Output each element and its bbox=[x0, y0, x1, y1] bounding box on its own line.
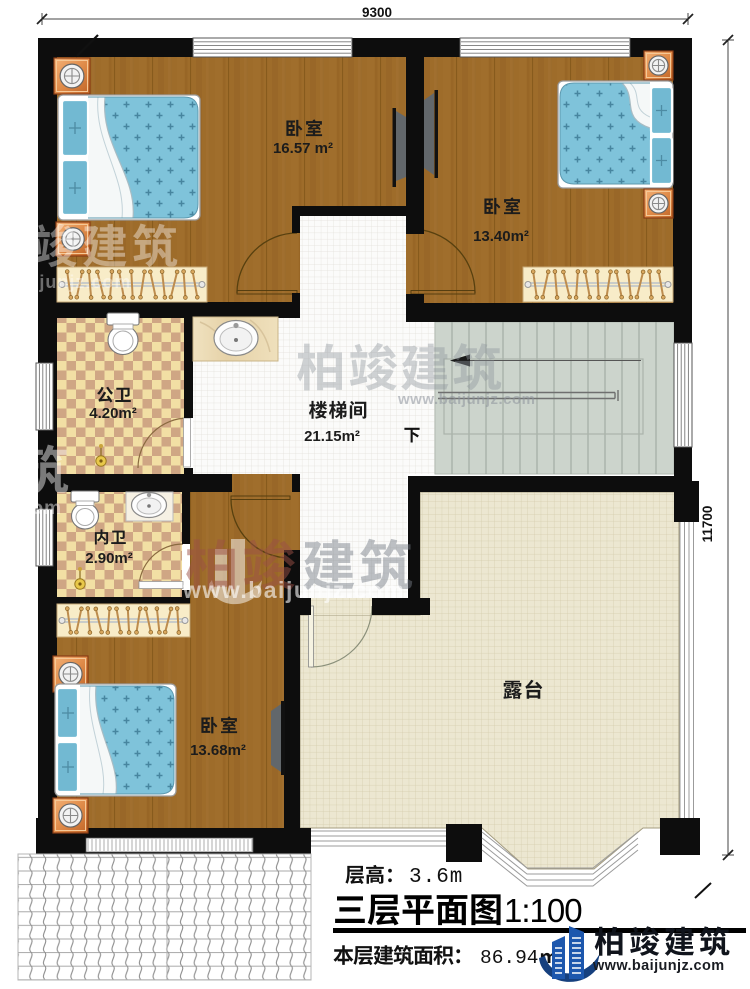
svg-text:www.baijunjz.com: www.baijunjz.com bbox=[0, 272, 131, 292]
svg-text:www.baijunjz.com: www.baijunjz.com bbox=[592, 958, 725, 974]
svg-text:86.94: 86.94 bbox=[480, 947, 539, 969]
svg-text:11700: 11700 bbox=[700, 506, 715, 543]
svg-text:4.20m²: 4.20m² bbox=[89, 405, 137, 422]
svg-text:9300: 9300 bbox=[362, 5, 392, 20]
svg-text:16.57 m²: 16.57 m² bbox=[273, 140, 333, 157]
svg-text:2.90m²: 2.90m² bbox=[85, 550, 133, 567]
svg-text:www.baijunjz.com: www.baijunjz.com bbox=[397, 391, 535, 408]
svg-text:13.68m²: 13.68m² bbox=[190, 742, 246, 759]
svg-text:13.40m²: 13.40m² bbox=[473, 228, 529, 245]
svg-text:www.baijunjz.com: www.baijunjz.com bbox=[182, 577, 406, 603]
svg-text:3.6m: 3.6m bbox=[409, 866, 463, 889]
svg-text:1:100: 1:100 bbox=[504, 892, 582, 929]
svg-text:21.15m²: 21.15m² bbox=[304, 428, 360, 445]
svg-text:www.baijunjz.com: www.baijunjz.com bbox=[0, 498, 62, 519]
